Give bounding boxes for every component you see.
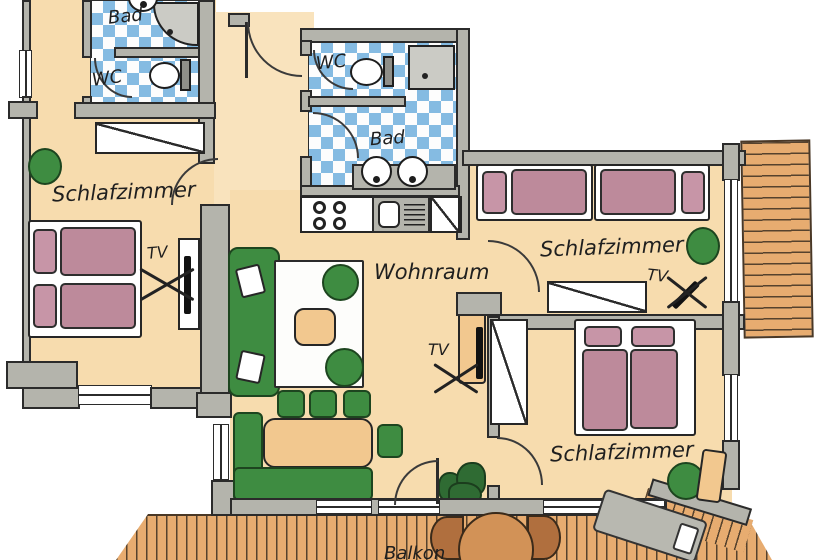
bed3-mattress-2 [630, 349, 678, 429]
wardrobe-bedroom3 [490, 319, 528, 425]
kitchen-sink-basin [378, 201, 400, 228]
shower2 [408, 45, 455, 90]
wall-corner-bottom-left [6, 361, 78, 389]
wall-step-block [196, 392, 232, 418]
tv-label-bedroom-left: TV [146, 242, 168, 263]
bed2a-pillow [482, 171, 507, 214]
wall-pier-left [8, 101, 38, 119]
window-living-left [213, 424, 229, 480]
room-label-wc2: WC [315, 50, 347, 74]
wall-bath2-left-a [300, 40, 312, 56]
bed2a-mattress [511, 169, 587, 215]
room-label-living: Wohnraum [374, 260, 490, 284]
coffee-table [294, 308, 336, 346]
kitchen-sink-drainer [404, 204, 425, 226]
stove-burner-1 [313, 201, 326, 214]
wardrobe-bedroom-left [95, 122, 205, 154]
room-label-bedroom-left: Schlafzimmer [52, 178, 196, 207]
dining-chair-4 [377, 424, 403, 458]
toilet1-tank [180, 59, 191, 91]
chair-bedroom-left [28, 148, 62, 185]
toilet1-bowl [149, 62, 180, 89]
bed-left-pillow-2 [33, 284, 57, 328]
room-label-bad1: Bad [107, 4, 144, 29]
dining-chair-2 [309, 390, 337, 418]
toilet2-bowl [350, 58, 383, 86]
stove-burner-2 [333, 201, 346, 214]
kitchen-cabinet [430, 196, 460, 233]
bed3-pillow-2 [631, 326, 675, 347]
bed3-mattress-1 [582, 349, 628, 431]
wall-bath1-mid [114, 47, 200, 58]
corner-bench-horizontal [233, 467, 373, 501]
wall-bath2-top [300, 28, 465, 43]
room-label-bedroom-right-bottom: Schlafzimmer [550, 438, 694, 467]
window-bedroom3-right [724, 374, 738, 442]
stove-burner-4 [333, 217, 346, 230]
wall-bath1-left-a [82, 0, 92, 58]
room-label-wc1: WC [91, 66, 124, 91]
stool-bottom [325, 348, 364, 387]
bed2b-pillow [681, 171, 705, 214]
room-label-bad2: Bad [369, 127, 405, 150]
stool-top [322, 264, 359, 301]
wall-bedroom-left-divider [200, 204, 230, 394]
wall-bedroom2-left-stub [456, 292, 502, 316]
window-bedroom2-right [724, 179, 738, 303]
bed-left-mattress-2 [60, 283, 136, 329]
dining-chair-1 [277, 390, 305, 418]
wall-right-pier-2 [722, 301, 740, 376]
room-label-balkon: Balkon [384, 543, 445, 560]
wall-bath1-bottom [74, 102, 216, 119]
floor-plan: Bad WC WC Bad Schlafzimmer Wohnraum Schl… [0, 0, 820, 560]
lounger-pillow [672, 522, 700, 555]
bed-left-pillow-1 [33, 229, 57, 274]
wardrobe-bedroom2 [547, 281, 647, 313]
dining-table [263, 418, 373, 468]
bed-left-mattress-1 [60, 227, 136, 276]
window-bedroom-left-bottom [78, 385, 152, 405]
balcony-right-deck [740, 139, 813, 338]
window-bottom-1 [316, 500, 372, 514]
bath2-basin-2 [397, 156, 428, 187]
window-left-wall [19, 50, 32, 98]
wall-outer-left-top [22, 0, 31, 52]
bed3-pillow-1 [584, 326, 622, 347]
wall-right-pier-1 [722, 143, 740, 181]
tv-screen-living [476, 327, 483, 379]
bed2b-mattress [600, 169, 676, 215]
dining-chair-3 [343, 390, 371, 418]
tv-label-living: TV [428, 340, 449, 359]
stove-burner-3 [313, 217, 326, 230]
bath2-basin-1 [361, 156, 392, 187]
toilet2-tank [383, 56, 394, 87]
tv-label-bedroom-right: TV [646, 265, 669, 286]
chair-bedroom2 [686, 227, 720, 265]
wall-wc2-bad2 [308, 96, 406, 107]
tv-screen-bedroom-left [184, 256, 191, 314]
room-label-bedroom-right-top: Schlafzimmer [540, 233, 684, 262]
wall-bedroom-left-bottom-a [22, 387, 80, 409]
